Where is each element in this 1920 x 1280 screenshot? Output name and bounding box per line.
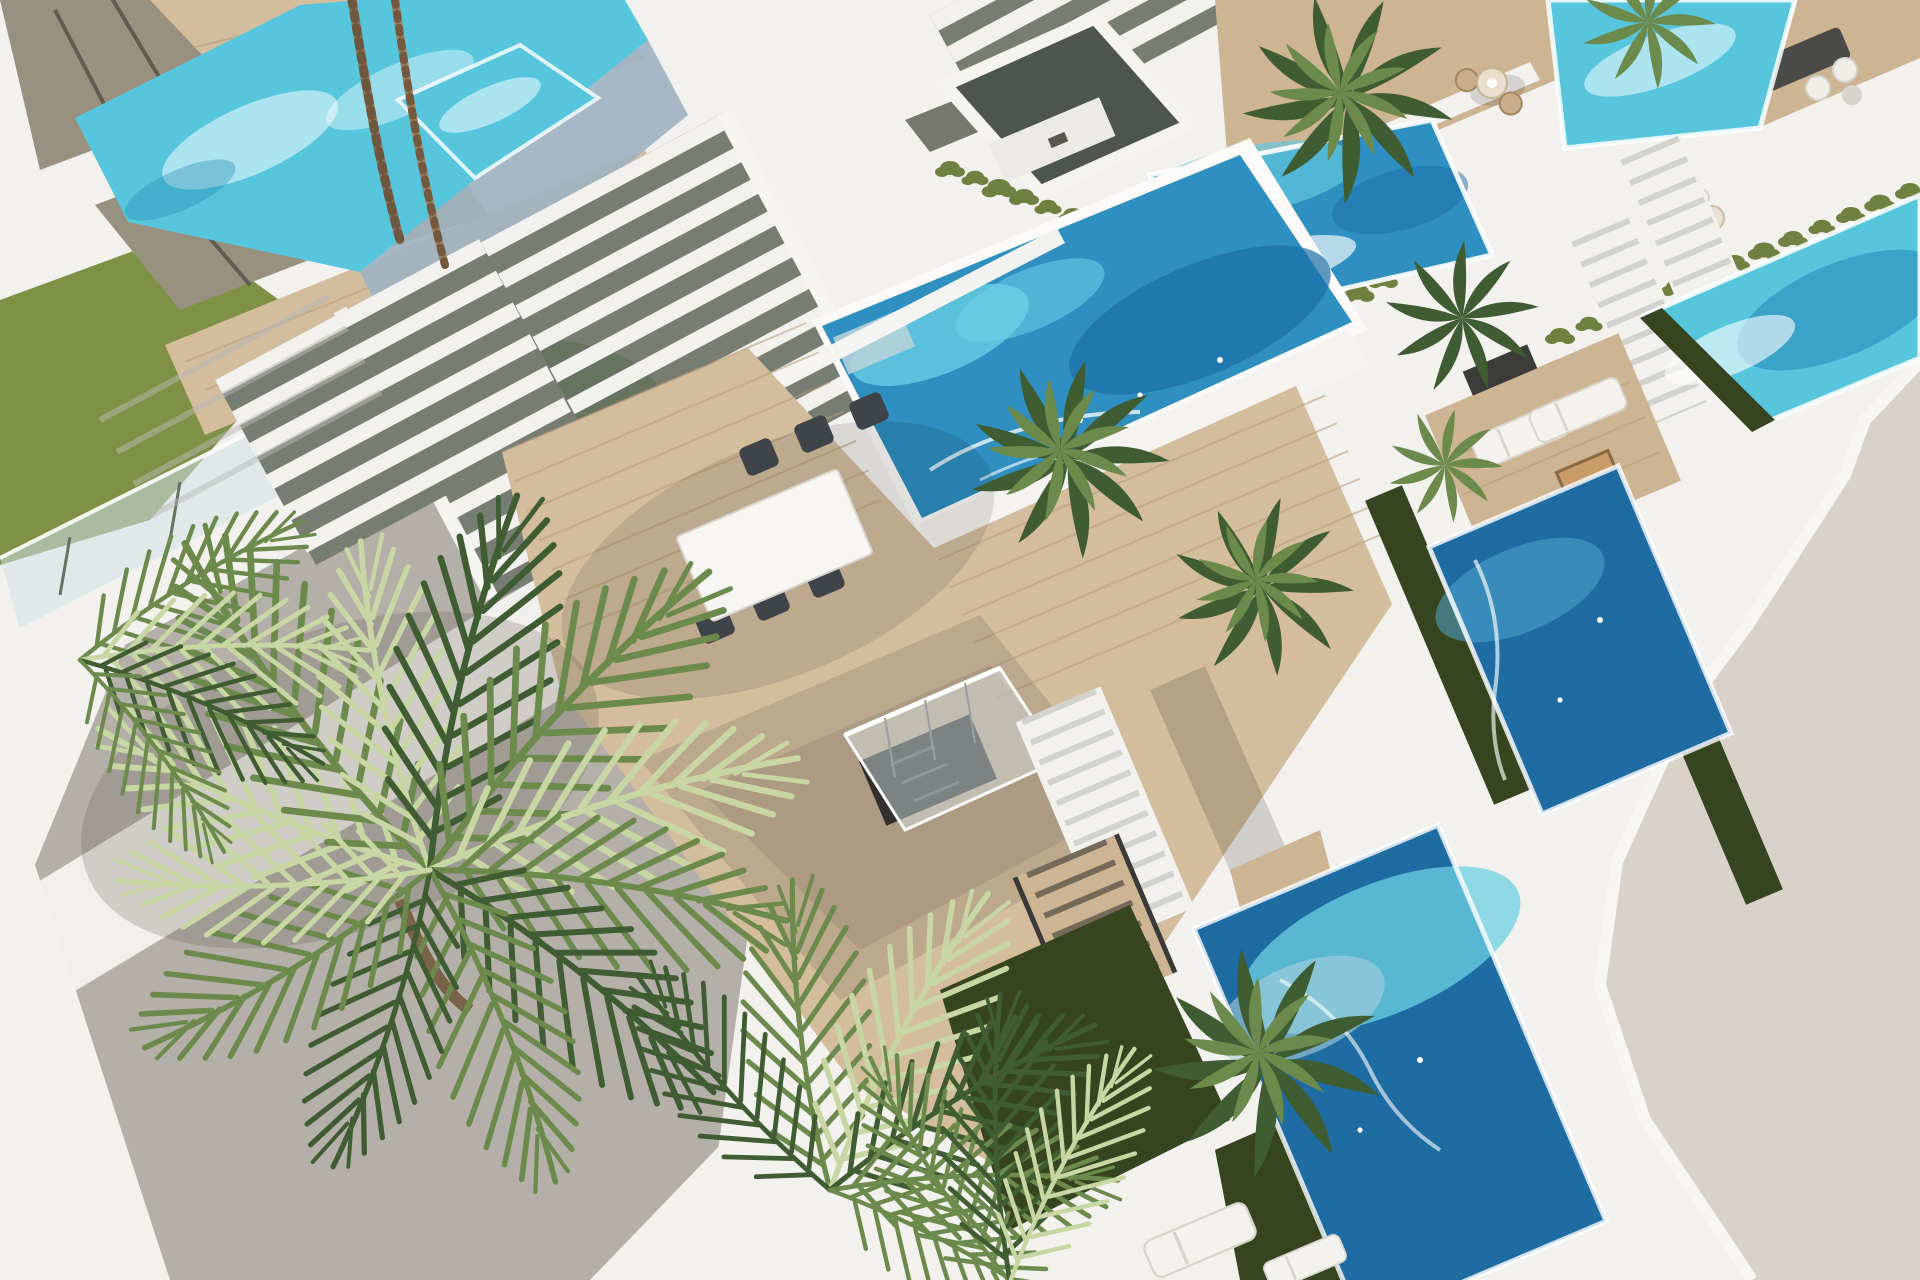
white-chair (1806, 76, 1830, 100)
white-chair (1833, 58, 1857, 82)
aerial-render (0, 0, 1920, 1280)
side-table (1842, 85, 1862, 105)
render-image (0, 0, 1920, 1280)
